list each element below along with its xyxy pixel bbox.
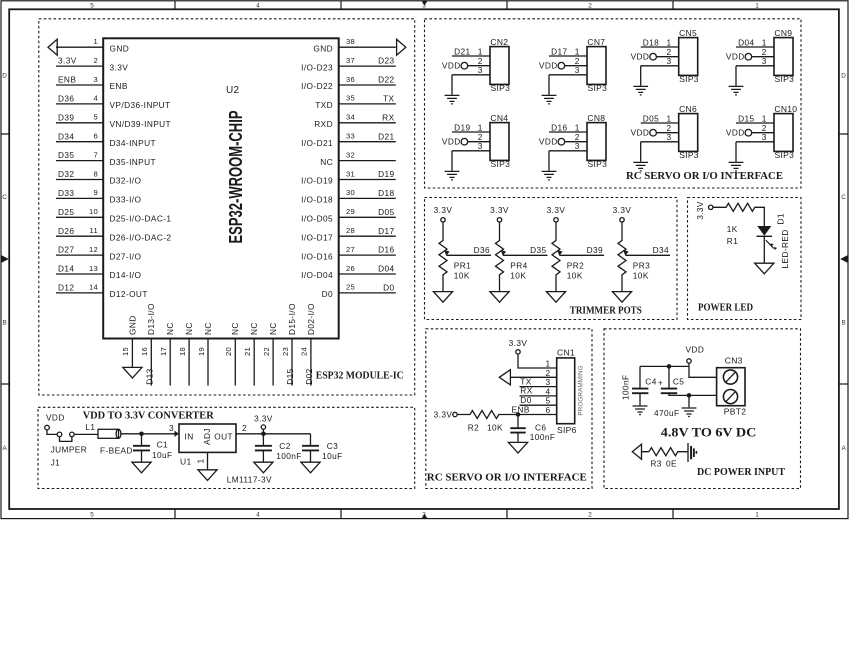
svg-text:5: 5 <box>90 2 94 9</box>
svg-text:35: 35 <box>346 94 355 103</box>
svg-text:SIP6: SIP6 <box>557 425 577 435</box>
svg-text:100nF: 100nF <box>530 432 556 442</box>
svg-text:D26: D26 <box>58 226 74 236</box>
svg-text:3.3V: 3.3V <box>434 409 453 419</box>
svg-text:GND: GND <box>127 315 137 335</box>
svg-text:CN1: CN1 <box>557 348 575 358</box>
svg-text:3.3V: 3.3V <box>509 338 528 348</box>
svg-text:D32-I/O: D32-I/O <box>110 176 142 186</box>
svg-text:4.8V TO 6V DC: 4.8V TO 6V DC <box>661 425 757 440</box>
svg-text:D34: D34 <box>58 131 74 141</box>
svg-text:D04: D04 <box>378 264 394 274</box>
svg-text:I/O-D23: I/O-D23 <box>301 62 333 72</box>
svg-text:NC: NC <box>230 322 240 335</box>
svg-text:C: C <box>841 194 846 201</box>
svg-text:C4: C4 <box>645 377 656 387</box>
svg-text:9: 9 <box>93 188 98 197</box>
svg-text:C3: C3 <box>327 441 338 451</box>
svg-text:3: 3 <box>422 2 426 9</box>
svg-text:D19: D19 <box>378 169 394 179</box>
svg-text:27: 27 <box>346 245 355 254</box>
svg-text:D33-I/O: D33-I/O <box>110 195 142 205</box>
svg-text:17: 17 <box>159 347 168 356</box>
svg-text:D39: D39 <box>587 245 603 255</box>
svg-text:D18: D18 <box>378 188 394 198</box>
svg-text:D25-I/O-DAC-1: D25-I/O-DAC-1 <box>110 214 172 224</box>
svg-text:D12: D12 <box>58 283 74 293</box>
svg-text:TXD: TXD <box>315 100 333 110</box>
svg-text:POWER LED: POWER LED <box>698 302 753 314</box>
svg-text:5: 5 <box>90 511 94 518</box>
svg-text:D32: D32 <box>58 169 74 179</box>
svg-text:TX: TX <box>383 94 394 104</box>
svg-text:7: 7 <box>93 150 98 159</box>
svg-text:1: 1 <box>195 458 205 463</box>
svg-text:F-BEAD: F-BEAD <box>100 445 133 455</box>
svg-text:3: 3 <box>422 511 426 518</box>
svg-text:B: B <box>2 320 6 327</box>
svg-text:4: 4 <box>256 2 260 9</box>
svg-text:22: 22 <box>262 347 271 356</box>
svg-text:D16: D16 <box>551 122 567 132</box>
svg-text:C5: C5 <box>673 377 684 387</box>
svg-text:CN3: CN3 <box>725 355 743 365</box>
svg-text:6: 6 <box>93 132 98 141</box>
svg-text:CN5: CN5 <box>679 28 697 38</box>
svg-text:D21: D21 <box>378 131 394 141</box>
svg-text:D13-I/O: D13-I/O <box>146 303 156 335</box>
svg-text:21: 21 <box>243 347 252 356</box>
svg-text:1: 1 <box>755 511 759 518</box>
svg-text:I/O-D05: I/O-D05 <box>301 214 333 224</box>
svg-text:24: 24 <box>300 347 309 356</box>
svg-text:PR3: PR3 <box>633 260 650 270</box>
svg-text:32: 32 <box>346 150 355 159</box>
svg-text:25: 25 <box>346 283 355 292</box>
svg-text:GND: GND <box>110 43 130 53</box>
svg-text:CN2: CN2 <box>490 37 508 47</box>
svg-text:ENB: ENB <box>110 81 128 91</box>
svg-text:15: 15 <box>121 347 130 356</box>
svg-text:C1: C1 <box>157 439 168 449</box>
svg-text:GND: GND <box>313 43 333 53</box>
svg-text:CN6: CN6 <box>679 104 697 114</box>
svg-text:NC: NC <box>249 322 259 335</box>
svg-text:10K: 10K <box>633 271 649 281</box>
svg-text:CN4: CN4 <box>490 113 508 123</box>
svg-text:1: 1 <box>755 2 759 9</box>
svg-text:14: 14 <box>89 283 98 292</box>
svg-text:ESP32-WROOM-CHIP: ESP32-WROOM-CHIP <box>226 111 246 244</box>
svg-text:PR1: PR1 <box>454 260 471 270</box>
svg-text:23: 23 <box>281 347 290 356</box>
svg-text:D13: D13 <box>144 368 154 384</box>
svg-text:D33: D33 <box>58 188 74 198</box>
svg-text:ESP32 MODULE-IC: ESP32 MODULE-IC <box>316 369 404 381</box>
svg-text:D26-I/O-DAC-2: D26-I/O-DAC-2 <box>110 232 172 242</box>
svg-text:D23: D23 <box>378 56 394 66</box>
svg-text:13: 13 <box>89 264 98 273</box>
svg-text:10: 10 <box>89 207 98 216</box>
svg-text:D17: D17 <box>551 46 567 56</box>
svg-text:D14-I/O: D14-I/O <box>110 270 142 280</box>
svg-text:26: 26 <box>346 264 355 273</box>
svg-text:1K: 1K <box>727 224 738 234</box>
svg-text:JUMPER: JUMPER <box>51 445 88 455</box>
svg-text:+: + <box>658 378 663 388</box>
svg-text:1: 1 <box>93 37 98 46</box>
svg-text:D17: D17 <box>378 226 394 236</box>
svg-text:VDD: VDD <box>686 345 705 355</box>
svg-text:10K: 10K <box>510 271 526 281</box>
svg-text:D39: D39 <box>58 112 74 122</box>
svg-text:31: 31 <box>346 169 355 178</box>
svg-text:R3: R3 <box>650 458 661 468</box>
svg-text:VDD TO 3.3V CONVERTER: VDD TO 3.3V CONVERTER <box>83 410 215 422</box>
svg-text:D15-I/O: D15-I/O <box>287 303 297 335</box>
svg-text:8: 8 <box>93 169 98 178</box>
svg-text:3: 3 <box>93 75 98 84</box>
svg-text:D12-OUT: D12-OUT <box>110 289 148 299</box>
svg-text:NC: NC <box>268 322 278 335</box>
svg-text:LED-RED: LED-RED <box>780 229 790 268</box>
svg-text:30: 30 <box>346 188 355 197</box>
svg-text:37: 37 <box>346 56 355 65</box>
svg-text:29: 29 <box>346 207 355 216</box>
svg-text:CN8: CN8 <box>587 113 605 123</box>
svg-text:D05: D05 <box>643 113 659 123</box>
svg-text:PR2: PR2 <box>567 260 584 270</box>
svg-text:J1: J1 <box>51 458 61 468</box>
svg-text:RC SERVO OR I/O INTERFACE: RC SERVO OR I/O INTERFACE <box>626 170 783 182</box>
svg-text:D19: D19 <box>454 122 470 132</box>
svg-text:VN/D39-INPUT: VN/D39-INPUT <box>110 119 172 129</box>
svg-text:D35: D35 <box>58 150 74 160</box>
svg-text:R2: R2 <box>468 422 479 432</box>
svg-text:D02: D02 <box>304 368 314 384</box>
svg-text:10K: 10K <box>567 271 583 281</box>
svg-text:2: 2 <box>242 423 247 433</box>
svg-text:3.3V: 3.3V <box>110 62 129 72</box>
svg-text:ENB: ENB <box>512 404 530 414</box>
svg-text:D18: D18 <box>643 37 659 47</box>
svg-text:2: 2 <box>588 2 592 9</box>
svg-text:3: 3 <box>169 423 174 433</box>
svg-text:28: 28 <box>346 226 355 235</box>
svg-text:10K: 10K <box>454 271 470 281</box>
svg-text:34: 34 <box>346 113 355 122</box>
svg-text:A: A <box>2 445 7 452</box>
svg-text:D15: D15 <box>285 368 295 384</box>
svg-text:RXD: RXD <box>314 119 333 129</box>
svg-text:12: 12 <box>89 245 98 254</box>
svg-text:D25: D25 <box>58 207 74 217</box>
svg-text:100nF: 100nF <box>276 451 302 461</box>
svg-text:D35: D35 <box>530 245 546 255</box>
svg-text:2: 2 <box>93 56 98 65</box>
svg-text:16: 16 <box>140 347 149 356</box>
svg-text:A: A <box>841 445 846 452</box>
svg-text:D: D <box>841 73 846 80</box>
svg-text:NC: NC <box>165 322 175 335</box>
svg-text:IN: IN <box>185 432 194 442</box>
svg-text:CN9: CN9 <box>774 28 792 38</box>
svg-text:D36: D36 <box>58 94 74 104</box>
svg-text:4: 4 <box>93 94 98 103</box>
svg-text:I/O-D21: I/O-D21 <box>301 138 333 148</box>
svg-text:C6: C6 <box>535 422 546 432</box>
svg-text:4: 4 <box>256 511 260 518</box>
svg-text:18: 18 <box>178 347 187 356</box>
svg-text:36: 36 <box>346 75 355 84</box>
svg-text:B: B <box>841 320 845 327</box>
svg-text:D34-INPUT: D34-INPUT <box>110 138 156 148</box>
svg-text:D05: D05 <box>378 207 394 217</box>
svg-text:L1: L1 <box>85 422 95 432</box>
svg-text:PROGRAMMING: PROGRAMMING <box>577 365 584 415</box>
svg-text:3.3V: 3.3V <box>695 201 705 220</box>
svg-text:NC: NC <box>320 157 333 167</box>
svg-text:LM1117-3V: LM1117-3V <box>227 475 272 485</box>
svg-text:I/O-D19: I/O-D19 <box>301 176 333 186</box>
svg-text:10uF: 10uF <box>152 450 173 460</box>
svg-text:D27-I/O: D27-I/O <box>110 251 142 261</box>
svg-text:U2: U2 <box>226 85 240 96</box>
svg-text:PR4: PR4 <box>510 260 527 270</box>
svg-text:C: C <box>2 194 7 201</box>
svg-text:I/O-D16: I/O-D16 <box>301 251 333 261</box>
svg-text:D36: D36 <box>474 245 490 255</box>
svg-text:C2: C2 <box>279 441 290 451</box>
svg-text:TRIMMER POTS: TRIMMER POTS <box>570 304 642 316</box>
svg-text:PBT2: PBT2 <box>724 407 746 417</box>
svg-text:NC: NC <box>184 322 194 335</box>
svg-text:D21: D21 <box>454 46 470 56</box>
svg-text:D16: D16 <box>378 245 394 255</box>
svg-text:D: D <box>2 73 7 80</box>
svg-text:D14: D14 <box>58 264 74 274</box>
svg-text:19: 19 <box>197 347 206 356</box>
svg-text:10uF: 10uF <box>322 451 343 461</box>
svg-text:OUT: OUT <box>214 432 233 442</box>
svg-text:100nF: 100nF <box>621 374 631 400</box>
svg-text:470uF: 470uF <box>654 408 680 418</box>
svg-text:D02-I/O: D02-I/O <box>306 303 316 335</box>
svg-text:CN7: CN7 <box>587 37 605 47</box>
svg-text:NC: NC <box>203 322 213 335</box>
svg-text:3.3V: 3.3V <box>254 413 273 423</box>
svg-text:D27: D27 <box>58 245 74 255</box>
svg-text:RX: RX <box>382 112 394 122</box>
svg-text:D35-INPUT: D35-INPUT <box>110 157 156 167</box>
svg-text:U1: U1 <box>180 457 191 467</box>
svg-text:D0: D0 <box>322 289 333 299</box>
svg-text:6: 6 <box>545 405 550 415</box>
svg-text:0E: 0E <box>666 458 677 468</box>
svg-text:VDD: VDD <box>46 413 65 423</box>
svg-text:3.3V: 3.3V <box>58 56 77 66</box>
svg-text:DC POWER INPUT: DC POWER INPUT <box>697 466 786 478</box>
svg-text:D1: D1 <box>776 213 786 224</box>
svg-text:20: 20 <box>224 347 233 356</box>
svg-text:VP/D36-INPUT: VP/D36-INPUT <box>110 100 171 110</box>
svg-text:I/O-D04: I/O-D04 <box>301 270 333 280</box>
svg-text:38: 38 <box>346 37 355 46</box>
svg-text:11: 11 <box>90 226 98 235</box>
svg-text:ENB: ENB <box>58 75 76 85</box>
svg-text:RC SERVO OR I/O INTERFACE: RC SERVO OR I/O INTERFACE <box>427 472 587 484</box>
svg-text:10K: 10K <box>487 422 503 432</box>
svg-text:D15: D15 <box>738 113 754 123</box>
svg-text:5: 5 <box>93 113 98 122</box>
svg-text:I/O-D17: I/O-D17 <box>301 232 333 242</box>
svg-text:I/O-D18: I/O-D18 <box>301 195 333 205</box>
svg-text:R1: R1 <box>727 236 738 246</box>
svg-text:D34: D34 <box>653 245 669 255</box>
svg-text:D22: D22 <box>378 75 394 85</box>
svg-text:33: 33 <box>346 132 355 141</box>
svg-text:CN10: CN10 <box>774 104 797 114</box>
svg-text:D04: D04 <box>738 37 754 47</box>
svg-text:2: 2 <box>588 511 592 518</box>
svg-text:I/O-D22: I/O-D22 <box>301 81 333 91</box>
svg-text:ADJ: ADJ <box>202 428 212 445</box>
svg-text:D0: D0 <box>383 283 394 293</box>
